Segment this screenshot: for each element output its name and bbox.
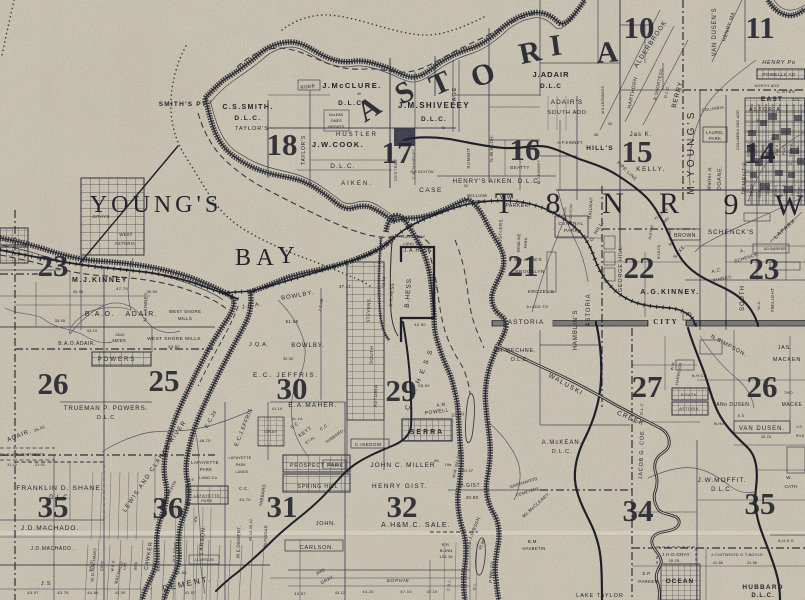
svg-text:WED: WED bbox=[134, 561, 139, 571]
svg-text:D.L.C: D.L.C bbox=[97, 415, 115, 421]
svg-text:GRAND: GRAND bbox=[747, 143, 751, 157]
svg-text:N.W.ELCH.: N.W.ELCH. bbox=[489, 134, 494, 162]
svg-text:GRAY: GRAY bbox=[264, 429, 277, 434]
svg-text:WILLIAM: WILLIAM bbox=[467, 193, 487, 198]
svg-text:J.A.HESS: J.A.HESS bbox=[404, 248, 433, 254]
svg-text:ASTORIA: ASTORIA bbox=[115, 241, 135, 246]
svg-text:A: A bbox=[256, 245, 274, 271]
svg-text:A.H&M.C. SALE.: A.H&M.C. SALE. bbox=[381, 522, 451, 529]
svg-text:HEIGHTS: HEIGHTS bbox=[328, 125, 345, 129]
svg-text:39.39: 39.39 bbox=[283, 357, 294, 361]
svg-text:PAGE: PAGE bbox=[452, 87, 458, 106]
svg-text:32: 32 bbox=[387, 489, 418, 524]
svg-text:33.45: 33.45 bbox=[55, 319, 66, 323]
svg-text:43.19: 43.19 bbox=[87, 329, 98, 333]
svg-text:C.A.L.: C.A.L. bbox=[445, 579, 451, 592]
svg-text:BOND: BOND bbox=[754, 144, 758, 156]
svg-text:40: 40 bbox=[357, 92, 361, 96]
svg-text:J.Q.A.: J.Q.A. bbox=[249, 342, 269, 348]
svg-text:40.59: 40.59 bbox=[147, 290, 158, 294]
svg-text:Coa.D: Coa.D bbox=[782, 184, 786, 196]
svg-text:RUFUS: RUFUS bbox=[563, 207, 567, 221]
svg-text:KASTAG: KASTAG bbox=[758, 182, 763, 198]
svg-text:25.24: 25.24 bbox=[761, 435, 772, 439]
svg-text:TWILIGHT: TWILIGHT bbox=[770, 288, 775, 313]
svg-text:43.78: 43.78 bbox=[57, 590, 69, 595]
svg-text:HENRY Po: HENRY Po bbox=[762, 60, 796, 66]
svg-text:LAND Co: LAND Co bbox=[199, 475, 218, 480]
svg-text:AIKEN.: AIKEN. bbox=[341, 181, 373, 187]
svg-text:W.W.: W.W. bbox=[500, 195, 514, 201]
svg-text:C.W.SHIVELEY: C.W.SHIVELEY bbox=[412, 149, 416, 180]
svg-text:38.9: 38.9 bbox=[186, 478, 194, 482]
svg-text:11: 11 bbox=[745, 10, 774, 45]
svg-text:45: 45 bbox=[441, 126, 445, 130]
svg-text:J.S: J.S bbox=[796, 424, 803, 429]
svg-text:VANo DUSEN.: VANo DUSEN. bbox=[713, 402, 751, 408]
svg-text:31.40: 31.40 bbox=[7, 463, 17, 467]
svg-text:HUSTLER: HUSTLER bbox=[336, 132, 378, 138]
svg-text:SOUTH: SOUTH bbox=[740, 285, 746, 311]
svg-text:19a: 19a bbox=[445, 463, 453, 467]
svg-text:YOUNGS BAY: YOUNGS BAY bbox=[399, 235, 426, 239]
svg-text:ASTORIA: ASTORIA bbox=[749, 107, 781, 113]
svg-text:WEMLINE: WEMLINE bbox=[517, 233, 522, 253]
svg-text:J.W.COOK.: J.W.COOK. bbox=[312, 140, 364, 149]
svg-text:HUSTLERS.: HUSTLERS. bbox=[497, 217, 503, 246]
svg-text:55.50: 55.50 bbox=[418, 383, 430, 388]
svg-text:46.14 40.42: 46.14 40.42 bbox=[249, 519, 254, 541]
svg-text:SUMMIT: SUMMIT bbox=[466, 147, 471, 168]
svg-text:WEST: WEST bbox=[119, 232, 132, 237]
svg-text:J.D.MACHADO.: J.D.MACHADO. bbox=[21, 525, 80, 532]
svg-text:91.97: 91.97 bbox=[463, 469, 474, 473]
svg-text:D.L.C.: D.L.C. bbox=[511, 357, 529, 363]
svg-text:J.ADAIR: J.ADAIR bbox=[532, 70, 569, 79]
svg-text:J.W.MOFFIT.: J.W.MOFFIT. bbox=[698, 477, 747, 484]
svg-text:NORTH ADD: NORTH ADD bbox=[755, 84, 780, 88]
svg-text:35: 35 bbox=[745, 486, 776, 521]
svg-text:Gen.L: Gen.L bbox=[774, 185, 778, 196]
svg-text:25: 25 bbox=[149, 363, 180, 398]
svg-text:VAN DUSEN.: VAN DUSEN. bbox=[739, 426, 785, 432]
svg-text:A.F.KINNEY: A.F.KINNEY bbox=[557, 140, 583, 145]
svg-text:D.L.C.: D.L.C. bbox=[234, 115, 261, 122]
svg-text:KELLY.: KELLY. bbox=[636, 166, 666, 173]
svg-text:40: 40 bbox=[608, 122, 612, 126]
svg-text:Co: Co bbox=[788, 162, 792, 166]
svg-text:PROSPECT PARK: PROSPECT PARK bbox=[290, 463, 344, 469]
svg-text:SOUTH: SOUTH bbox=[681, 393, 697, 397]
svg-text:McLEAN: McLEAN bbox=[329, 113, 344, 117]
svg-text:W.FIDGAR: W.FIDGAR bbox=[263, 525, 269, 547]
svg-text:LAFAYETTE: LAFAYETTE bbox=[194, 494, 221, 498]
svg-text:P.M.: P.M. bbox=[797, 186, 801, 194]
svg-text:53.50: 53.50 bbox=[168, 344, 180, 349]
svg-text:HENRY GIST.: HENRY GIST. bbox=[372, 483, 428, 490]
svg-text:W.: W. bbox=[786, 475, 792, 480]
svg-text:44.20: 44.20 bbox=[362, 589, 374, 594]
svg-text:2640: 2640 bbox=[115, 333, 124, 337]
svg-text:52: 52 bbox=[464, 184, 468, 188]
svg-text:C.C.: C.C. bbox=[239, 486, 249, 491]
svg-text:41.14: 41.14 bbox=[272, 407, 283, 411]
svg-text:DOANE.: DOANE. bbox=[717, 166, 724, 191]
svg-text:N: N bbox=[602, 187, 624, 220]
svg-text:LAKE TAYLOR: LAKE TAYLOR bbox=[576, 593, 624, 599]
svg-text:LUCY: LUCY bbox=[790, 184, 794, 195]
svg-text:H.GIST: H.GIST bbox=[460, 483, 480, 489]
svg-text:15: 15 bbox=[622, 134, 653, 169]
svg-text:MACKE: MACKE bbox=[782, 402, 803, 408]
svg-text:AL.&.J.R.MATHEWS: AL.&.J.R.MATHEWS bbox=[0, 452, 45, 457]
svg-text:40.70: 40.70 bbox=[239, 497, 251, 502]
svg-text:SPRING HILL: SPRING HILL bbox=[297, 484, 338, 490]
svg-text:B.Ho: B.Ho bbox=[714, 421, 724, 426]
svg-text:JAS.: JAS. bbox=[778, 345, 793, 351]
svg-text:I.H.MECHNE.: I.H.MECHNE. bbox=[494, 348, 537, 354]
svg-text:B.A.O.: B.A.O. bbox=[85, 311, 115, 318]
svg-text:C.S.SMITH.: C.S.SMITH. bbox=[222, 104, 273, 111]
svg-text:51.55: 51.55 bbox=[286, 319, 299, 324]
svg-text:J.H.D.GRAY: J.H.D.GRAY bbox=[662, 552, 690, 557]
svg-text:46: 46 bbox=[392, 159, 396, 163]
svg-text:COLUMBIA 2ND ADD: COLUMBIA 2ND ADD bbox=[736, 110, 740, 150]
svg-text:ASTORIA: ASTORIA bbox=[373, 385, 379, 408]
svg-text:J.D.MACHADO.: J.D.MACHADO. bbox=[30, 546, 73, 552]
svg-text:D.L.C.: D.L.C. bbox=[751, 593, 774, 599]
svg-text:STEVENS.: STEVENS. bbox=[366, 297, 372, 323]
svg-text:E.A.MAHER.: E.A.MAHER. bbox=[288, 402, 338, 409]
svg-text:B.M.: B.M. bbox=[528, 539, 538, 544]
svg-text:ASTORIA: ASTORIA bbox=[508, 319, 545, 326]
svg-text:B.A.O.ADAIR.: B.A.O.ADAIR. bbox=[58, 341, 95, 347]
svg-text:D.L.C.: D.L.C. bbox=[711, 487, 733, 493]
svg-text:J.CHITWOOD G.T.BOYLE: J.CHITWOOD G.T.BOYLE bbox=[711, 552, 763, 557]
svg-text:43.87: 43.87 bbox=[294, 591, 306, 596]
svg-text:GRAYS: GRAYS bbox=[92, 214, 109, 219]
svg-text:43.39: 43.39 bbox=[115, 591, 126, 595]
svg-text:LAUREL: LAUREL bbox=[706, 130, 724, 135]
svg-text:BLINN: BLINN bbox=[440, 548, 453, 553]
svg-text:D.L.C.: D.L.C. bbox=[338, 100, 366, 107]
svg-text:PARK: PARK bbox=[201, 499, 213, 503]
svg-text:48.75: 48.75 bbox=[199, 438, 211, 443]
svg-text:ELM: ELM bbox=[796, 146, 800, 154]
svg-text:AD.BARKER: AD.BARKER bbox=[764, 247, 786, 251]
svg-text:CATH: CATH bbox=[784, 484, 797, 489]
svg-text:8: 8 bbox=[546, 187, 561, 220]
svg-text:PARK: PARK bbox=[524, 237, 528, 248]
svg-text:LEIGHTON: LEIGHTON bbox=[569, 204, 574, 224]
svg-text:CEDAR: CEDAR bbox=[789, 143, 793, 157]
svg-text:MEEK.: MEEK. bbox=[112, 338, 128, 343]
svg-text:B.H.Co: B.H.Co bbox=[692, 373, 707, 378]
svg-text:23: 23 bbox=[38, 248, 69, 283]
svg-text:LUCY: LUCY bbox=[775, 144, 779, 155]
svg-text:PARK: PARK bbox=[200, 467, 212, 472]
svg-text:MACKEN: MACKEN bbox=[773, 357, 801, 363]
svg-text:BROWN: BROWN bbox=[674, 233, 696, 239]
svg-text:WEST SHORE: WEST SHORE bbox=[169, 309, 201, 314]
svg-text:LAS: LAS bbox=[123, 562, 128, 570]
svg-text:J.S: J.S bbox=[41, 581, 51, 587]
svg-text:LAFAYETTE: LAFAYETTE bbox=[191, 460, 219, 465]
svg-text:C.STEV: C.STEV bbox=[777, 89, 796, 94]
svg-text:39.48: 39.48 bbox=[73, 290, 84, 294]
svg-text:CITY: CITY bbox=[653, 318, 679, 326]
svg-text:SOUTH: SOUTH bbox=[369, 346, 375, 364]
svg-text:J.McCLURE.: J.McCLURE. bbox=[322, 81, 382, 90]
svg-text:B: B bbox=[235, 245, 251, 271]
svg-text:LAND Co: LAND Co bbox=[403, 242, 420, 246]
svg-text:Y: Y bbox=[277, 243, 294, 269]
svg-text:DEMENT'S: DEMENT'S bbox=[741, 161, 748, 194]
svg-text:NILROS: NILROS bbox=[657, 244, 662, 259]
svg-text:VAN DUSEN'S: VAN DUSEN'S bbox=[712, 8, 718, 57]
svg-text:26: 26 bbox=[38, 366, 69, 401]
svg-text:47.70: 47.70 bbox=[116, 286, 128, 291]
svg-text:41.86: 41.86 bbox=[713, 561, 724, 565]
svg-text:95: 95 bbox=[756, 119, 760, 123]
svg-text:BEATTY: BEATTY bbox=[510, 165, 530, 170]
svg-text:M.J.KINNEY: M.J.KINNEY bbox=[72, 277, 128, 284]
svg-text:Mrs ANNE'S: Mrs ANNE'S bbox=[514, 257, 542, 262]
svg-text:D.L.C: D.L.C bbox=[540, 83, 562, 90]
svg-text:D.L.C.: D.L.C. bbox=[552, 449, 572, 455]
svg-text:M.A.: M.A. bbox=[756, 300, 761, 309]
svg-text:26: 26 bbox=[747, 369, 778, 404]
svg-text:43.12: 43.12 bbox=[335, 591, 346, 595]
svg-text:WEST SHORE MILLS: WEST SHORE MILLS bbox=[147, 336, 201, 342]
svg-text:JOHN.: JOHN. bbox=[316, 521, 337, 527]
svg-text:ASTORIA: ASTORIA bbox=[586, 293, 592, 326]
svg-text:37.47: 37.47 bbox=[339, 284, 351, 289]
svg-text:PARK: PARK bbox=[564, 228, 579, 234]
svg-text:A.G.KINNEY.: A.G.KINNEY. bbox=[640, 289, 700, 296]
svg-text:SCHENCK'S: SCHENCK'S bbox=[708, 229, 754, 236]
svg-text:A.McKEAN.: A.McKEAN. bbox=[542, 440, 583, 446]
svg-text:41.57: 41.57 bbox=[185, 591, 196, 595]
svg-text:31.96: 31.96 bbox=[747, 561, 758, 565]
svg-text:40.80: 40.80 bbox=[466, 495, 479, 500]
svg-text:JOHN C. MILLER: JOHN C. MILLER bbox=[370, 462, 435, 469]
svg-text:1n ADD TO: 1n ADD TO bbox=[526, 304, 548, 309]
svg-text:HAMBLIN'S: HAMBLIN'S bbox=[573, 310, 579, 351]
svg-text:21.40: 21.40 bbox=[35, 463, 45, 467]
svg-text:SOUTH ADD: SOUTH ADD bbox=[547, 110, 586, 116]
svg-text:27: 27 bbox=[632, 369, 663, 404]
svg-text:SMITH'S PT.: SMITH'S PT. bbox=[159, 101, 210, 108]
svg-text:34: 34 bbox=[623, 493, 654, 528]
svg-text:M.YOUNG'S: M.YOUNG'S bbox=[686, 109, 697, 194]
svg-text:20.45: 20.45 bbox=[94, 265, 106, 270]
svg-text:40.50: 40.50 bbox=[414, 322, 426, 327]
svg-text:RYA: RYA bbox=[796, 433, 805, 438]
svg-text:GEORGE HILL.: GEORGE HILL. bbox=[618, 244, 624, 292]
svg-text:PLAS: PLAS bbox=[782, 145, 786, 156]
svg-text:PARK: PARK bbox=[236, 463, 247, 467]
svg-text:A: A bbox=[595, 35, 619, 69]
svg-text:47.10: 47.10 bbox=[427, 590, 438, 594]
svg-text:TRUEMAN P. POWERS.: TRUEMAN P. POWERS. bbox=[64, 405, 149, 412]
svg-text:PARK: PARK bbox=[709, 136, 721, 141]
svg-text:CARLSON.: CARLSON. bbox=[300, 545, 335, 551]
svg-text:43.97: 43.97 bbox=[27, 590, 39, 595]
svg-text:SERRA: SERRA bbox=[410, 429, 445, 436]
svg-text:EAST: EAST bbox=[761, 96, 783, 103]
svg-text:Walter A.: Walter A. bbox=[707, 165, 714, 190]
svg-text:COMM.: COMM. bbox=[761, 143, 765, 157]
svg-text:D.L.: D.L. bbox=[792, 97, 801, 102]
svg-text:D.L.C.: D.L.C. bbox=[421, 116, 447, 123]
svg-text:TAYLOR'S: TAYLOR'S bbox=[301, 135, 307, 165]
svg-text:ASTORIA: ASTORIA bbox=[679, 407, 698, 411]
svg-text:OCEAN: OCEAN bbox=[666, 578, 694, 585]
svg-text:LAFAYETTE: LAFAYETTE bbox=[228, 456, 251, 460]
svg-text:OAK: OAK bbox=[766, 185, 770, 194]
svg-text:21: 21 bbox=[508, 248, 539, 283]
svg-text:POWERS: POWERS bbox=[98, 357, 137, 363]
svg-text:LANDS: LANDS bbox=[236, 470, 249, 474]
svg-text:C.ISEDOW.: C.ISEDOW. bbox=[355, 442, 383, 447]
svg-text:E.P.: E.P. bbox=[642, 571, 651, 576]
svg-text:SOPHIE: SOPHIE bbox=[387, 578, 410, 584]
svg-text:M.K.LEONNESS: M.K.LEONNESS bbox=[601, 86, 605, 114]
svg-text:20.25: 20.25 bbox=[668, 558, 680, 563]
svg-text:RIVER: RIVER bbox=[750, 184, 754, 196]
svg-text:31: 31 bbox=[267, 489, 298, 524]
svg-text:CONCO: CONCO bbox=[768, 143, 772, 158]
svg-text:22: 22 bbox=[624, 250, 655, 285]
svg-text:R.R.: R.R. bbox=[442, 542, 451, 547]
svg-text:44.64: 44.64 bbox=[87, 590, 99, 595]
svg-text:CASE: CASE bbox=[419, 187, 443, 194]
svg-text:D.L.C.: D.L.C. bbox=[330, 163, 356, 170]
svg-text:HUBBARD: HUBBARD bbox=[742, 584, 783, 591]
svg-text:AG: AG bbox=[771, 137, 776, 141]
svg-text:BOWLBY.: BOWLBY. bbox=[291, 343, 325, 349]
svg-text:PORT.: PORT. bbox=[472, 199, 486, 204]
svg-text:POWELLS AD: POWELLS AD bbox=[762, 72, 795, 77]
svg-text:E.C. JEFFRIS.: E.C. JEFFRIS. bbox=[253, 372, 319, 379]
svg-text:HILL'S: HILL'S bbox=[586, 145, 614, 152]
svg-text:PARKER.: PARKER. bbox=[505, 203, 530, 209]
svg-text:SIMES: SIMES bbox=[330, 119, 342, 123]
svg-text:38: 38 bbox=[594, 133, 598, 137]
svg-text:16: 16 bbox=[510, 132, 541, 167]
svg-text:E.S: E.S bbox=[738, 414, 745, 418]
svg-text:ADAIR'S: ADAIR'S bbox=[551, 99, 583, 106]
svg-text:MILLS: MILLS bbox=[178, 316, 192, 321]
svg-text:PARKER.: PARKER. bbox=[638, 579, 660, 584]
svg-text:HAVBETIN: HAVBETIN bbox=[522, 546, 545, 551]
svg-text:D.L.C.: D.L.C. bbox=[49, 495, 71, 501]
svg-text:THO.: THO. bbox=[784, 390, 794, 395]
svg-text:J.M.SHIVELEY: J.M.SHIVELEY bbox=[398, 101, 470, 110]
svg-text:47.10: 47.10 bbox=[400, 589, 412, 594]
svg-text:FRANKLIN D. SHANE.: FRANKLIN D. SHANE. bbox=[16, 485, 104, 492]
svg-text:9: 9 bbox=[724, 188, 739, 221]
svg-text:136.16: 136.16 bbox=[439, 554, 453, 559]
svg-text:S.R.SEXTON: S.R.SEXTON bbox=[410, 170, 433, 174]
svg-text:TAYLOR'S: TAYLOR'S bbox=[235, 126, 269, 132]
svg-text:BROOKLYN: BROOKLYN bbox=[515, 269, 545, 275]
svg-text:Jas K.: Jas K. bbox=[630, 132, 653, 138]
svg-text:A.H.S.G: A.H.S.G bbox=[778, 538, 794, 543]
svg-text:ADAIR.: ADAIR. bbox=[126, 311, 159, 318]
svg-text:Vic: Vic bbox=[193, 515, 199, 523]
svg-text:D.L.C: D.L.C bbox=[639, 403, 644, 415]
svg-text:18: 18 bbox=[267, 127, 298, 162]
